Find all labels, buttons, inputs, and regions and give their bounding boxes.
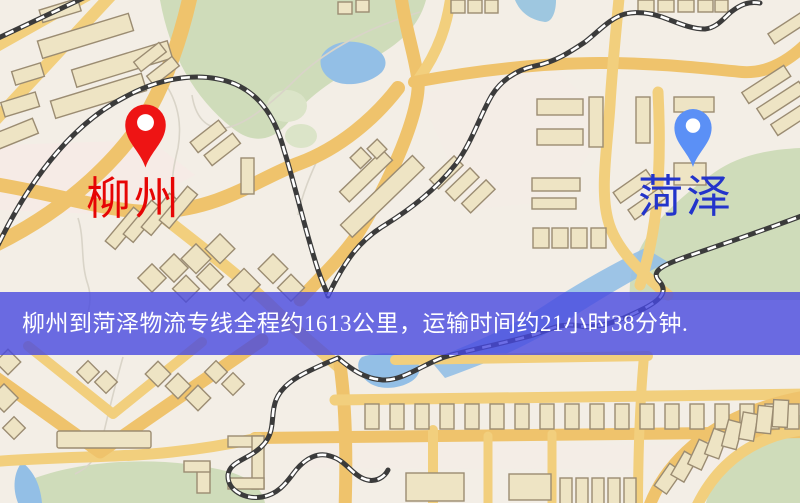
map-viewport[interactable]: 柳州 菏泽 柳州到菏泽物流专线全程约1613公里，运输时间约21小时38分钟. bbox=[0, 0, 800, 503]
destination-pin-hole bbox=[686, 118, 700, 132]
destination-pin[interactable] bbox=[672, 108, 714, 173]
route-info-text: 柳州到菏泽物流专线全程约1613公里，运输时间约21小时38分钟. bbox=[0, 292, 800, 355]
location-pin-icon bbox=[672, 108, 714, 168]
destination-label: 菏泽 bbox=[638, 175, 734, 220]
origin-label: 柳州 bbox=[86, 177, 182, 222]
route-info-banner: 柳州到菏泽物流专线全程约1613公里，运输时间约21小时38分钟. bbox=[0, 292, 800, 355]
origin-pin-hole bbox=[137, 114, 154, 131]
origin-pin[interactable] bbox=[123, 103, 168, 174]
origin-pin-body bbox=[125, 105, 166, 168]
location-pin-icon bbox=[123, 103, 168, 169]
destination-pin-body bbox=[674, 109, 711, 167]
map-canvas bbox=[0, 0, 800, 503]
